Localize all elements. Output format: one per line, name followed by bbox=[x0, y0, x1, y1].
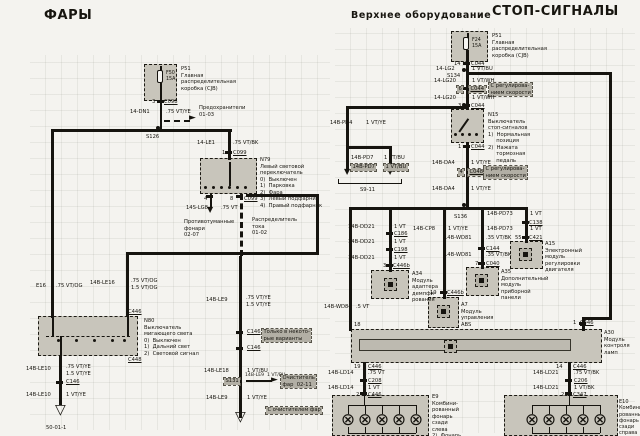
wire-segment-dashed bbox=[240, 194, 243, 256]
diagram-label: .75 VT/YE 1.5 VT/YE bbox=[246, 295, 271, 308]
lamp-icon: ⊗ bbox=[575, 412, 591, 429]
connector-tick bbox=[360, 379, 367, 382]
wire-segment bbox=[349, 207, 469, 210]
diagram-label: 1 VT/BU bbox=[384, 164, 408, 171]
diagram-label: 14B-PD7 bbox=[351, 155, 373, 162]
contact-dot bbox=[228, 186, 231, 189]
diagram-label: A7 Модуль управления ABS bbox=[461, 302, 493, 328]
diagram-label: E16 bbox=[36, 283, 46, 290]
diagram-label: Очиститель фар 02-11 bbox=[281, 375, 316, 388]
contact-dot bbox=[123, 339, 126, 342]
diagram-label: A34 Модуль адаптера демпфи- рования bbox=[412, 271, 438, 304]
wire-segment bbox=[532, 433, 600, 434]
diagram-label: 1 VT bbox=[394, 224, 406, 231]
diagram-label: .75 VT/YE bbox=[166, 109, 191, 116]
diagram-label: 14B-PD7 bbox=[351, 164, 376, 171]
diagram-label: C048 bbox=[468, 169, 485, 176]
wire-segment bbox=[338, 183, 402, 184]
diagram-label: .75 VT/BK bbox=[574, 370, 599, 377]
wire-segment bbox=[346, 106, 349, 170]
wire-segment bbox=[52, 316, 54, 336]
wire-segment bbox=[346, 106, 469, 109]
diagram-label: 1 VT bbox=[394, 255, 406, 262]
lamp-icon: ⊗ bbox=[592, 412, 608, 429]
diagram-label: .75 VT bbox=[368, 370, 385, 377]
diagram-label: C146 bbox=[66, 379, 80, 386]
wire-segment bbox=[160, 83, 163, 132]
contact-dot bbox=[93, 339, 96, 342]
diagram-label: 1 VT/YE bbox=[66, 392, 86, 399]
wire-segment bbox=[466, 207, 528, 210]
diagram-label: S131 bbox=[224, 378, 240, 385]
wire-segment bbox=[246, 380, 272, 382]
diagram-label: 1 bbox=[458, 144, 461, 151]
contact-dot bbox=[236, 186, 239, 189]
diagram-label: 1 bbox=[573, 320, 576, 327]
diagram-label: 3 bbox=[458, 103, 461, 110]
connector-tick bbox=[157, 100, 164, 103]
diagram-label: 1 VT bbox=[530, 226, 542, 233]
diagram-label: 14B-PD73 bbox=[487, 211, 513, 218]
wire-segment bbox=[228, 129, 231, 160]
diagram-label: S126 bbox=[146, 134, 159, 141]
diagram-label: 1 VT/BU bbox=[472, 66, 493, 73]
diagram-label: F50 15A bbox=[166, 71, 175, 83]
diagram-label: Распределитель тока 01-02 bbox=[252, 217, 297, 237]
wire-segment bbox=[389, 207, 392, 272]
diagram-label: 14B-LE10 bbox=[26, 366, 51, 373]
diagram-label: 14-DN1 bbox=[130, 109, 150, 116]
wire-segment bbox=[51, 129, 54, 318]
lamp-icon: ⊗ bbox=[524, 412, 540, 429]
diagram-label: 4 bbox=[204, 196, 207, 203]
diagram-label: 1 VT/WH bbox=[472, 95, 494, 102]
diagram-label: С очистителем фар bbox=[266, 407, 322, 414]
diagram-label: C098 bbox=[164, 99, 178, 106]
diagram-label: A35 Дополнительный модуль приборной пане… bbox=[501, 269, 548, 302]
diagram-label: 1 VT/YE bbox=[448, 226, 468, 233]
diagram-label: 14B-DD21 bbox=[348, 239, 375, 246]
diagram-label: .75 VT bbox=[221, 205, 238, 212]
component-n15-box bbox=[451, 109, 484, 143]
diagram-label: Только в некото- рые варианты bbox=[262, 329, 311, 342]
diagram-label: 14-LG2 bbox=[436, 66, 455, 73]
diagram-label: E10 Комбини- рованный фонарь сзади справ… bbox=[619, 399, 640, 436]
wire-segment bbox=[609, 72, 612, 320]
diagram-label: C040 bbox=[486, 261, 500, 268]
diagram-label: 19 bbox=[430, 290, 437, 297]
diagram-label: С регулирова- нием скорости bbox=[489, 83, 532, 96]
lamp-icon: ⊗ bbox=[340, 412, 356, 429]
diagram-label: C044 bbox=[471, 103, 485, 110]
offpage-connector-icon: ▽ bbox=[55, 403, 66, 417]
diagram-label: 3 bbox=[152, 99, 155, 106]
diagram-label: 14 bbox=[454, 61, 461, 68]
module-core-icon bbox=[523, 252, 528, 257]
diagram-label: 4 bbox=[458, 169, 464, 176]
module-icon bbox=[519, 248, 532, 261]
diagram-label: P51 Главная распределительная коробка (C… bbox=[492, 33, 547, 59]
wire-segment bbox=[126, 252, 129, 316]
connector-tick bbox=[463, 145, 470, 148]
wire-segment bbox=[466, 50, 469, 110]
diagram-label: 14S-LG8 bbox=[186, 205, 208, 212]
lamp-icon: ⊗ bbox=[374, 412, 390, 429]
diagram-label: 14B-LE9 bbox=[206, 395, 228, 402]
diagram-label: C448 bbox=[128, 357, 142, 364]
connector-tick bbox=[236, 195, 243, 198]
connector-tick bbox=[236, 331, 243, 334]
diagram-label: 1 VT/BU bbox=[384, 155, 405, 162]
diagram-label: 1 VT/YE bbox=[366, 120, 386, 127]
diagram-label: N15 Выключатель стоп-сигналов 1) Нормаль… bbox=[488, 112, 530, 164]
diagram-label: 19 bbox=[354, 364, 361, 371]
diagram-label: 1 VT bbox=[530, 211, 542, 218]
diagram-label: 14B-DD21 bbox=[348, 224, 375, 231]
diagram-label: 55 bbox=[515, 235, 522, 242]
diagram-label: 14B-PD73 bbox=[487, 226, 513, 233]
diagram-label: A15 Электронный модуль регулировки двига… bbox=[545, 241, 582, 274]
diagram-label: F24 15A bbox=[472, 38, 481, 50]
offpage-connector-icon: ▽ bbox=[235, 410, 246, 424]
diagram-label: C099 bbox=[233, 150, 247, 157]
connector-tick bbox=[522, 236, 529, 239]
diagram-label: C198 bbox=[394, 247, 408, 254]
module-icon bbox=[475, 274, 488, 287]
diagram-label: Противотуманные фонари 02-07 bbox=[184, 219, 234, 239]
diagram-label: 14B-LE9 1 VT/BU bbox=[245, 373, 285, 379]
diagram-label: 1 VT bbox=[368, 385, 380, 392]
lamp-icon: ⊗ bbox=[408, 412, 424, 429]
diagram-label: A30 Модуль контроля ламп bbox=[604, 330, 630, 356]
diagram-label: 3 bbox=[383, 263, 386, 270]
diagram-label: 14B-LE16 bbox=[90, 280, 115, 287]
connector-tick bbox=[522, 221, 529, 224]
contact-dot bbox=[212, 186, 215, 189]
connector-tick bbox=[56, 381, 63, 384]
diagram-label: 2 bbox=[561, 392, 564, 399]
connector-tick bbox=[565, 379, 572, 382]
diagram-label: 14B-LE9 bbox=[206, 297, 228, 304]
diagram-label: C044 bbox=[469, 86, 486, 93]
lamp-icon: ⊗ bbox=[541, 412, 557, 429]
wire-segment-dashed bbox=[164, 120, 190, 122]
module-icon bbox=[437, 305, 450, 318]
wire-segment bbox=[338, 179, 339, 184]
contact-dot bbox=[454, 133, 457, 136]
connector-tick bbox=[360, 392, 367, 395]
diagram-label: C347 bbox=[573, 392, 587, 399]
wire-segment bbox=[348, 433, 416, 434]
diagram-label: Предохранители 01-03 bbox=[199, 105, 245, 118]
diagram-label: P51 Главная распределительная коробка (C… bbox=[181, 66, 236, 92]
module-core-icon bbox=[441, 309, 446, 314]
fuse-icon bbox=[157, 70, 163, 83]
module-icon bbox=[444, 340, 457, 353]
diagram-label: 14-LG20 bbox=[434, 78, 456, 85]
contact-dot bbox=[75, 339, 78, 342]
diagram-label: C146 bbox=[247, 329, 261, 336]
diagram-label: 1 VT bbox=[394, 239, 406, 246]
wire-segment bbox=[569, 396, 570, 406]
contact-dot bbox=[468, 133, 471, 136]
diagram-label: .75 VT/OG 1.5 VT/OG bbox=[131, 278, 157, 291]
diagram-label: N80 Выключатель мигающего света 0) Выклю… bbox=[144, 318, 199, 357]
diagram-label: 14B-DA4 bbox=[432, 160, 455, 167]
diagram-label: 14-LG20 bbox=[434, 95, 456, 102]
diagram-label: 14B-CP8 bbox=[413, 226, 435, 233]
connector-tick bbox=[565, 392, 572, 395]
wire-segment bbox=[51, 129, 232, 132]
wire-segment bbox=[60, 336, 62, 356]
wire-segment bbox=[229, 162, 231, 186]
connector-tick bbox=[440, 291, 447, 294]
module-core-icon bbox=[479, 278, 484, 283]
diagram-label: С регулирова- нием скорости bbox=[484, 166, 527, 179]
diagram-label: C446b bbox=[447, 290, 464, 297]
arrow-down-icon: ▼ bbox=[344, 168, 350, 176]
diagram-label: 1 VT/BK bbox=[574, 385, 594, 392]
contact-dot bbox=[475, 133, 478, 136]
connector-tick bbox=[386, 248, 393, 251]
contact-dot bbox=[57, 339, 60, 342]
contact-dot bbox=[111, 339, 114, 342]
wire-segment bbox=[346, 146, 392, 149]
connector-tick bbox=[478, 262, 485, 265]
diagram-label: C446 bbox=[128, 309, 142, 316]
diagram-label: 14B-LE10 bbox=[26, 392, 51, 399]
diagram-label: C186 bbox=[394, 231, 408, 238]
diagram-label: .75 VT/YE 1.5 VT/YE bbox=[66, 364, 91, 377]
diagram-label: E9 Комбини- рованный фонарь сзади слева … bbox=[432, 394, 477, 436]
diagram-label: C044 bbox=[471, 144, 485, 151]
diagram-label: 14B-WD81 bbox=[444, 235, 472, 242]
diagram-label: 2 bbox=[356, 392, 359, 399]
diagram-label: .35 VT/BK bbox=[486, 235, 511, 242]
lamp-icon: ⊗ bbox=[391, 412, 407, 429]
wire-segment bbox=[126, 252, 319, 255]
module-core-icon bbox=[448, 344, 453, 349]
schematic-canvas: ⊗⊗⊗⊗⊗⊗⊗⊗⊗⊗►►▼▼▼▽▽P51 Главная распределит… bbox=[0, 0, 640, 436]
diagram-label: C446b bbox=[393, 263, 410, 270]
lamp-icon: ⊗ bbox=[558, 412, 574, 429]
diagram-label: N79 Левый световой переключатель 0) Выкл… bbox=[260, 157, 322, 209]
connector-strip bbox=[359, 339, 571, 351]
diagram-label: 1 bbox=[222, 150, 225, 157]
diagram-label: 50-01-1 bbox=[46, 425, 66, 432]
diagram-label: 8 bbox=[230, 196, 233, 203]
diagram-label: 14B-WD84 bbox=[324, 304, 352, 311]
diagram-label: S136 bbox=[454, 214, 467, 221]
fuse-icon bbox=[463, 37, 469, 50]
wiring-diagram-page: ФАРЫ СТОП-СИГНАЛЫ Верхнее оборудование ⊗… bbox=[0, 0, 640, 436]
contact-dot bbox=[204, 186, 207, 189]
diagram-label: 14B-LE18 bbox=[204, 368, 229, 375]
connector-tick bbox=[386, 264, 393, 267]
module-icon bbox=[384, 278, 397, 291]
diagram-label: C421 bbox=[529, 235, 543, 242]
diagram-label: 6 bbox=[457, 86, 463, 93]
module-core-icon bbox=[388, 282, 393, 287]
connector-tick bbox=[225, 151, 232, 154]
component-p51-right-box bbox=[451, 31, 488, 62]
diagram-label: S9-11 bbox=[360, 187, 375, 194]
diagram-label: C206 bbox=[574, 378, 588, 385]
diagram-label: 1 VT/YE bbox=[247, 395, 267, 402]
wire-segment bbox=[59, 355, 62, 405]
diagram-label: C208 bbox=[368, 378, 382, 385]
wire-segment bbox=[481, 207, 484, 269]
wire-segment bbox=[239, 256, 242, 418]
wire-segment bbox=[401, 179, 402, 184]
diagram-label: .5 VT bbox=[356, 304, 369, 311]
diagram-label: .75 VT/BK bbox=[233, 140, 258, 147]
contact-dot bbox=[244, 186, 247, 189]
diagram-label: 18 bbox=[354, 322, 361, 329]
diagram-label: 14-LE1 bbox=[197, 140, 215, 147]
connector-tick bbox=[236, 347, 243, 350]
diagram-label: 14B-DD21 bbox=[348, 255, 375, 262]
diagram-label: 14B-WD81 bbox=[444, 252, 472, 259]
diagram-label: 14B-LD14 bbox=[328, 370, 354, 377]
wire-segment bbox=[466, 142, 469, 210]
connector-tick bbox=[478, 247, 485, 250]
contact-dot bbox=[220, 186, 223, 189]
diagram-label: 14B-LD21 bbox=[533, 370, 559, 377]
diagram-label: C099 bbox=[244, 196, 258, 203]
diagram-label: 14B-LD21 bbox=[533, 385, 559, 392]
connector-tick bbox=[386, 232, 393, 235]
wire-segment bbox=[127, 316, 129, 336]
diagram-label: 7 bbox=[475, 261, 478, 268]
diagram-label: 14B-LD14 bbox=[328, 385, 354, 392]
diagram-label: .75 VT/OG bbox=[56, 283, 82, 290]
contact-dot bbox=[461, 133, 464, 136]
diagram-label: C446 bbox=[368, 392, 382, 399]
diagram-label: 1 VT/YE bbox=[471, 186, 491, 193]
diagram-label: 14B-PD4 bbox=[330, 120, 352, 127]
lamp-icon: ⊗ bbox=[357, 412, 373, 429]
diagram-label: C446 bbox=[580, 320, 594, 327]
diagram-label: .35 VT/BK bbox=[486, 252, 511, 259]
connector-tick bbox=[463, 62, 470, 65]
diagram-label: C146 bbox=[247, 345, 261, 352]
diagram-label: 14B-DA4 bbox=[432, 186, 455, 193]
